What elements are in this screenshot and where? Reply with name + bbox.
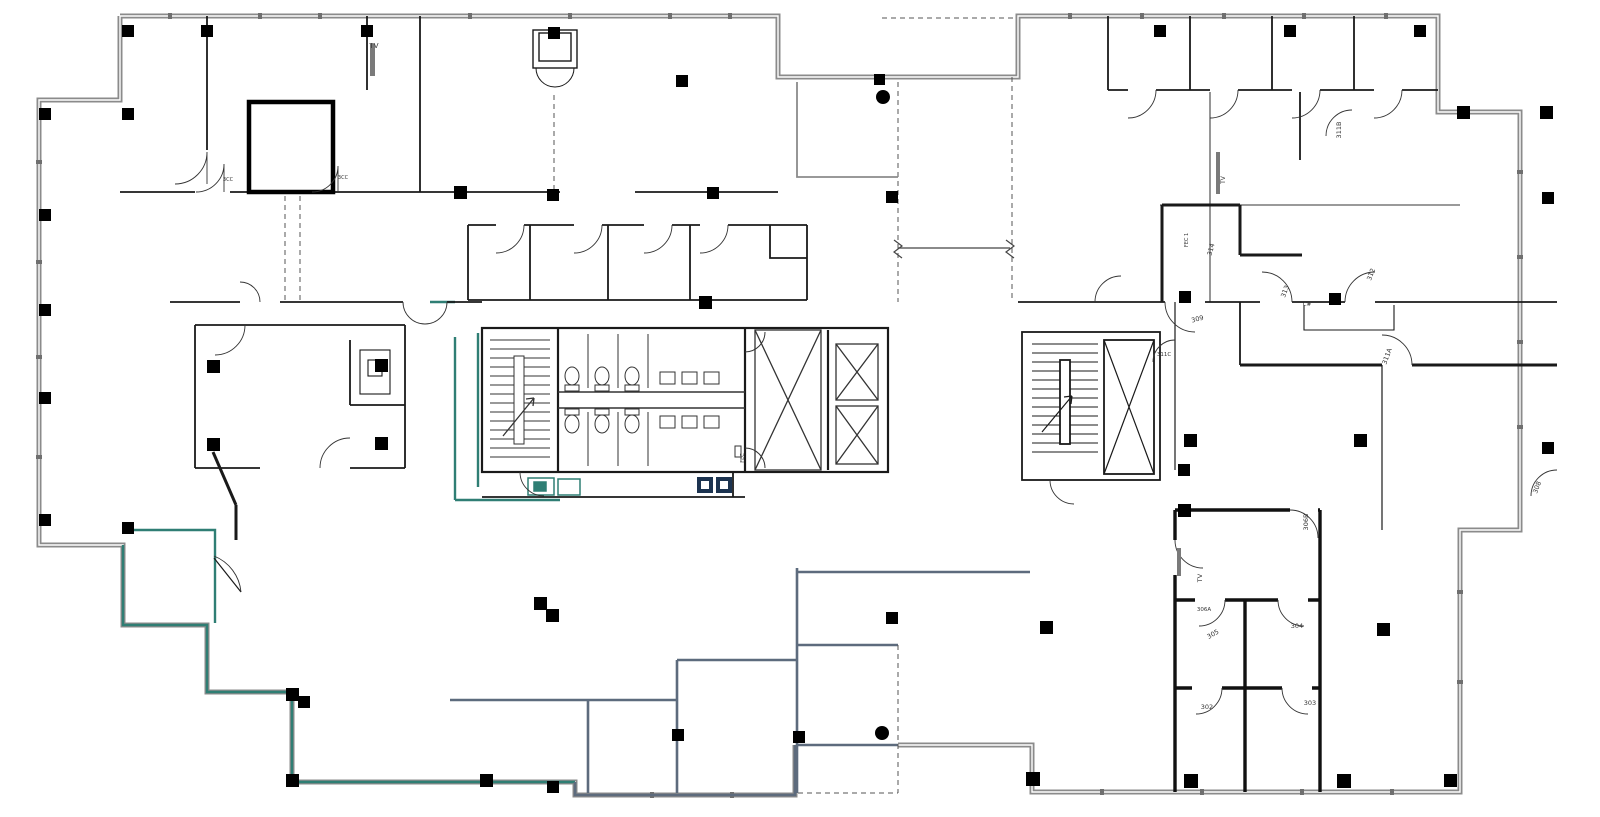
teal-accent-walls — [123, 302, 575, 782]
label-room-302: 302 — [1201, 703, 1213, 711]
label-room-311C: 311C — [1157, 352, 1171, 358]
label-room-311A: 311A — [1380, 347, 1393, 366]
label-tv-right-wing: TV — [1220, 175, 1227, 185]
label-room-305: 305 — [1206, 628, 1221, 641]
right-core — [1022, 332, 1160, 480]
label-tv-306: TV — [1196, 573, 1204, 583]
label-fec-1: FEC 1 — [1184, 233, 1190, 247]
label-room-311B: 311B — [1335, 122, 1343, 139]
label-door-tag-1: 3CC — [223, 177, 234, 183]
label-room-306A: 306A — [1197, 607, 1211, 613]
label-casework-ch: C# — [1303, 302, 1312, 308]
label-room-309: 309 — [1190, 314, 1204, 325]
interior-walls-right-wing — [1018, 16, 1557, 530]
central-core-walls — [482, 328, 888, 472]
floor-plan-page: TV 3CC 3CC FEC TV FEC 1 311B 314 313 C# … — [0, 0, 1600, 817]
label-room-313: 313 — [1279, 284, 1291, 298]
restroom-fixtures — [558, 332, 765, 468]
wall-break-symbols — [894, 240, 1014, 258]
electrical-panel-icons — [697, 477, 732, 493]
label-room-312: 312 — [1365, 267, 1377, 281]
label-door-tag-2: 3CC — [338, 175, 349, 181]
label-room-304: 304 — [1291, 622, 1303, 630]
perimeter-wall-core-line — [39, 16, 1520, 795]
teal-cabinet-icon — [528, 478, 580, 495]
perimeter-walls — [39, 16, 1520, 795]
stair-icon-left — [490, 340, 550, 457]
label-room-308: 308 — [1531, 480, 1543, 494]
interior-walls-left-wing — [120, 16, 898, 592]
room-labels: TV 3CC 3CC FEC TV FEC 1 311B 314 313 C# … — [223, 42, 1543, 711]
door-arcs — [175, 90, 1557, 714]
label-room-314: 314 — [1206, 242, 1217, 256]
elevator-icons-central — [755, 330, 878, 470]
label-tv-top-left: TV — [368, 42, 378, 50]
floor-plan-drawing: TV 3CC 3CC FEC TV FEC 1 311B 314 313 C# … — [0, 0, 1600, 817]
label-room-303: 303 — [1304, 699, 1316, 707]
label-room-306B: 306B — [1302, 514, 1310, 531]
label-fec-core: FEC — [740, 453, 746, 463]
thick-wall-room — [249, 102, 333, 192]
interior-walls-bottom-right — [1175, 510, 1320, 792]
